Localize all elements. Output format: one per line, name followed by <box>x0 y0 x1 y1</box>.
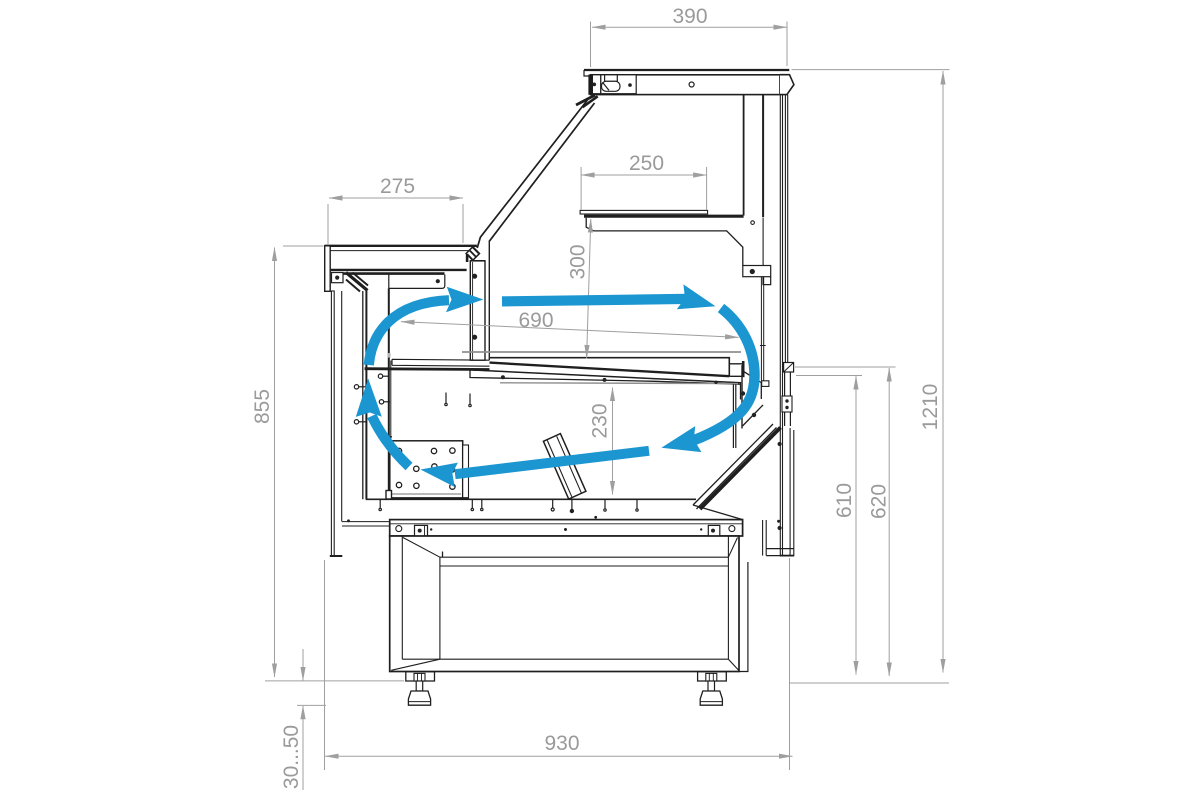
svg-text:610: 610 <box>833 483 856 518</box>
svg-text:300: 300 <box>567 244 590 279</box>
svg-text:690: 690 <box>518 309 553 332</box>
svg-text:390: 390 <box>672 5 707 28</box>
svg-text:930: 930 <box>544 732 579 755</box>
svg-text:1210: 1210 <box>919 384 942 431</box>
svg-text:275: 275 <box>380 175 415 198</box>
svg-text:855: 855 <box>251 389 274 424</box>
svg-text:30...50: 30...50 <box>280 725 303 789</box>
svg-text:620: 620 <box>868 484 891 519</box>
svg-text:230: 230 <box>589 403 612 438</box>
svg-text:250: 250 <box>629 152 664 175</box>
